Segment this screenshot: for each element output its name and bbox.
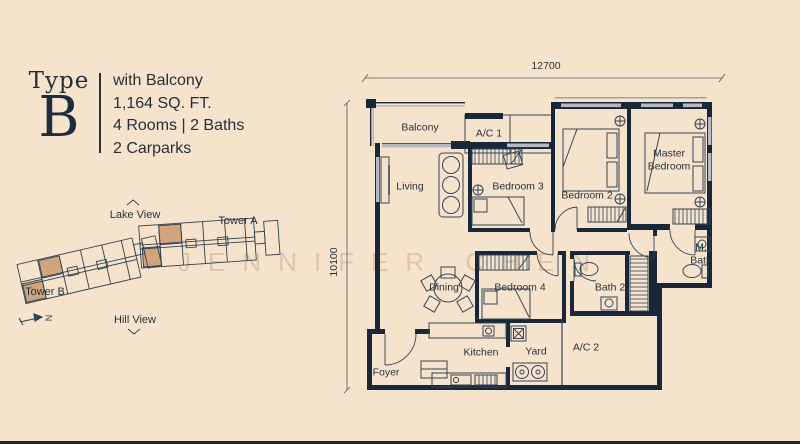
unit-type-letter: B	[26, 90, 92, 146]
floorplan-page: JENNIFER CHEN Type B with Balcony 1,164 …	[0, 0, 800, 444]
room-label-kitchen: Kitchen	[463, 347, 498, 360]
room-label-dining: Dining	[429, 282, 459, 295]
hill-view-chevron	[128, 329, 140, 334]
hill-view-label: Hill View	[114, 314, 156, 326]
room-label-living: Living	[396, 181, 423, 194]
tower-a-outline	[139, 216, 281, 268]
dimension-width-label: 12700	[531, 60, 560, 72]
room-label-balcony: Balcony	[401, 122, 438, 135]
room-label-foyer: Foyer	[373, 367, 400, 380]
tower-b-label: Tower B	[25, 286, 65, 298]
room-label-ac2: A/C 2	[573, 342, 599, 355]
room-label-bedroom4: Bedroom 4	[494, 282, 545, 295]
room-label-master-bath: M. Bath	[684, 241, 718, 266]
room-label-bedroom3: Bedroom 3	[492, 181, 543, 194]
room-label-master-bedroom: Master Bedroom	[638, 147, 700, 172]
dimension-height-label: 10100	[328, 247, 340, 276]
type-divider	[99, 73, 101, 153]
room-label-bath2: Bath 2	[595, 282, 625, 295]
lake-view-chevron	[127, 200, 139, 205]
tower-a-label: Tower A	[218, 215, 257, 227]
room-label-ac1: A/C 1	[476, 128, 502, 141]
unit-detail-rooms: 4 Rooms | 2 Baths	[113, 115, 244, 138]
room-label-yard: Yard	[525, 346, 546, 359]
unit-detail-balcony: with Balcony	[113, 70, 244, 93]
north-label: N	[44, 315, 54, 322]
unit-detail-area: 1,164 SQ. FT.	[113, 93, 244, 116]
lake-view-label: Lake View	[110, 209, 161, 221]
north-arrow-icon: N	[19, 314, 54, 325]
unit-detail-carparks: 2 Carparks	[113, 138, 244, 161]
room-label-bedroom2: Bedroom 2	[561, 190, 612, 203]
unit-details: with Balcony 1,164 SQ. FT. 4 Rooms | 2 B…	[113, 70, 244, 160]
